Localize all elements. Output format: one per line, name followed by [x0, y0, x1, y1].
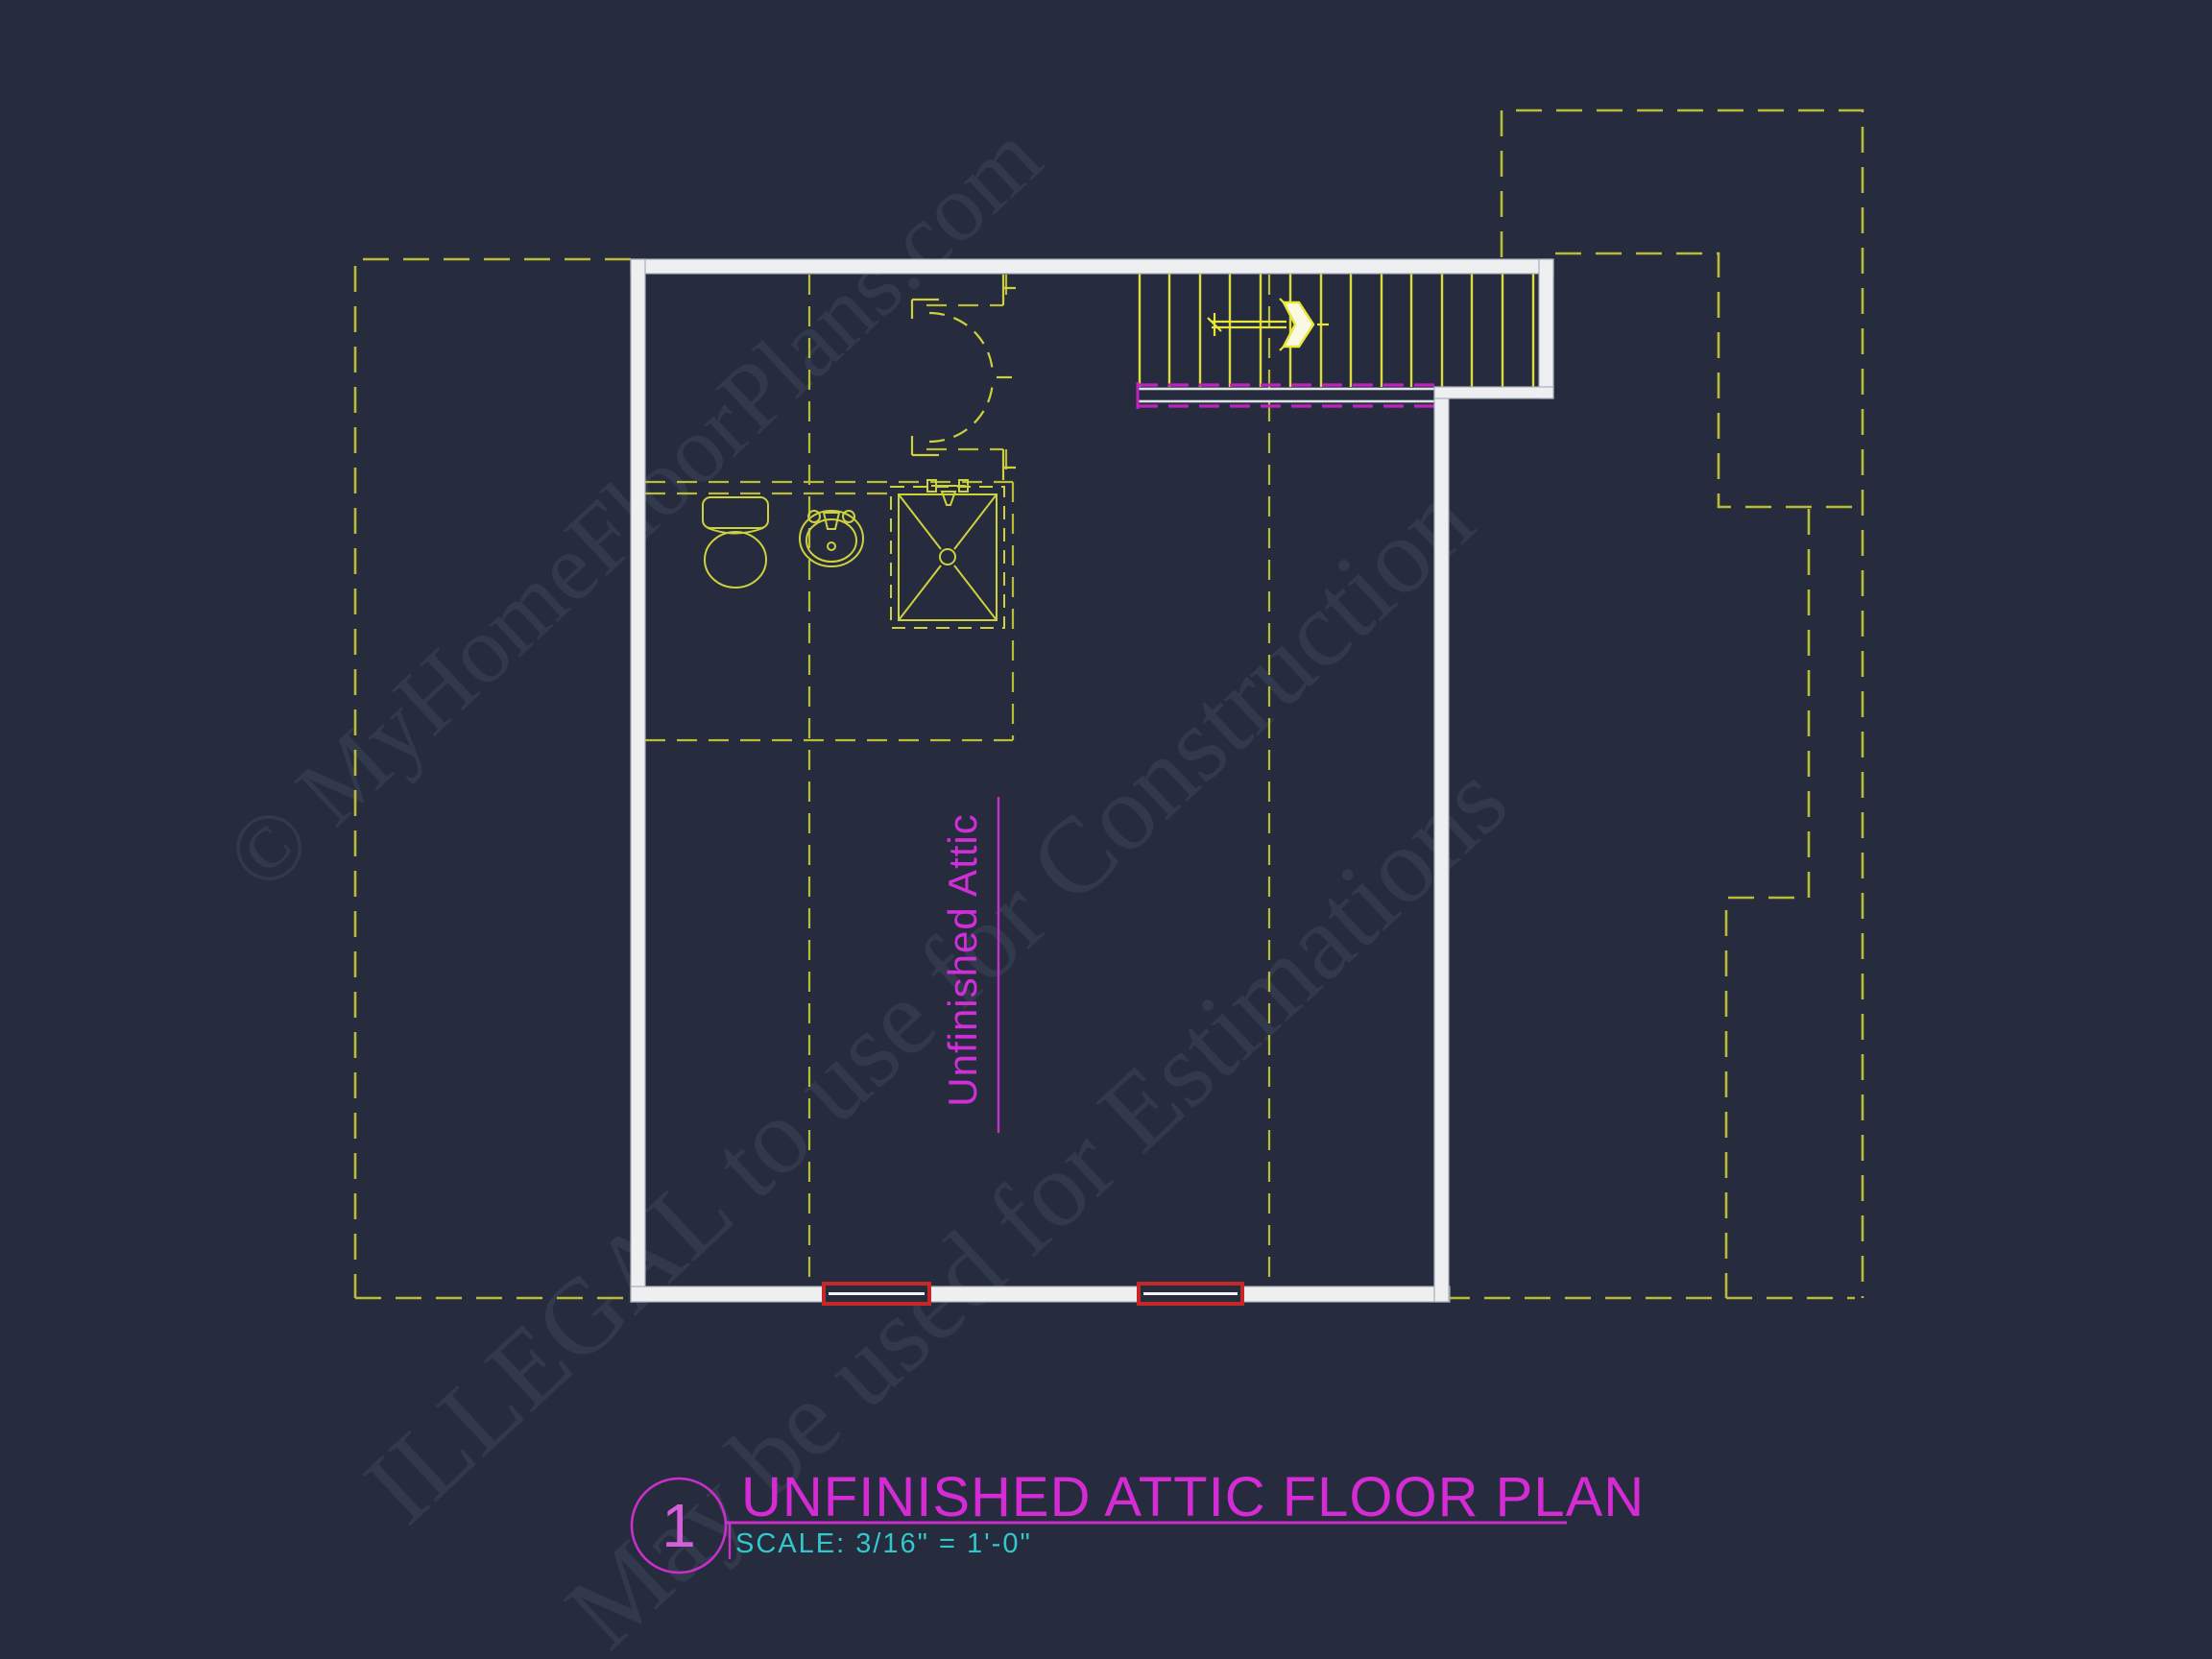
- room-label: Unfinished Attic: [938, 768, 988, 1152]
- floor-plan-drawing: [0, 0, 2212, 1659]
- wall-left: [631, 259, 645, 1302]
- toilet-fixture: [703, 497, 768, 588]
- cad-canvas: © MyHomeFloorPlans.com ILLEGAL to use fo…: [0, 0, 2212, 1659]
- wall-stairwell-right: [1539, 259, 1553, 398]
- stair-treads: [1140, 274, 1533, 387]
- plan-title: UNFINISHED ATTIC FLOOR PLAN: [741, 1465, 1645, 1529]
- roof-outline-dashed: [355, 110, 1863, 1298]
- wall-bottom: [631, 1286, 1450, 1302]
- wall-stairwell-bottom: [1434, 387, 1553, 398]
- exterior-walls: [631, 259, 1553, 1302]
- shower-stall: [891, 480, 1004, 628]
- wall-right: [1434, 387, 1449, 1302]
- wall-top: [631, 259, 1553, 274]
- detail-number: 1: [640, 1489, 717, 1562]
- plan-scale-label: SCALE: 3/16" = 1'-0": [735, 1528, 1032, 1560]
